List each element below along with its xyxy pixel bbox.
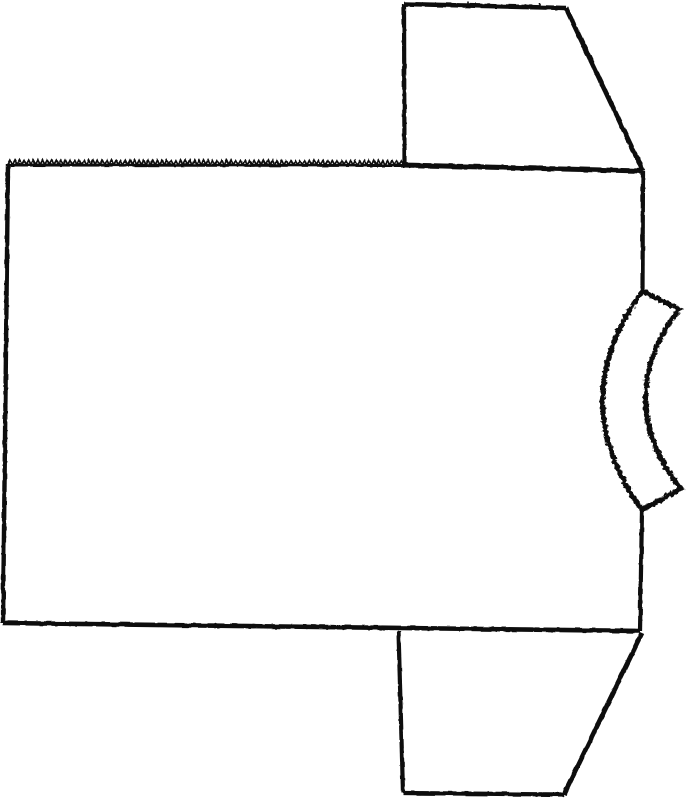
neckband-strip-outline [603,291,681,510]
shoulder-seam-line [403,165,643,171]
bottom-sleeve-slant-edge [564,633,642,795]
scanned-pattern-page [0,0,687,800]
body-right-edge-upper [643,171,644,291]
top-sleeve-top-edge [404,4,566,8]
body-bottom-edge [3,623,640,631]
body-left-edge [3,164,8,623]
pattern-svg [0,0,687,800]
top-sleeve-left-edge [404,4,405,164]
bottom-sleeve-left-edge [399,631,404,793]
body-top-serrated-teeth [8,160,404,165]
top-sleeve-slant-edge [566,8,643,171]
bottom-sleeve-bottom-edge [403,793,564,795]
body-right-edge-lower [640,510,642,631]
